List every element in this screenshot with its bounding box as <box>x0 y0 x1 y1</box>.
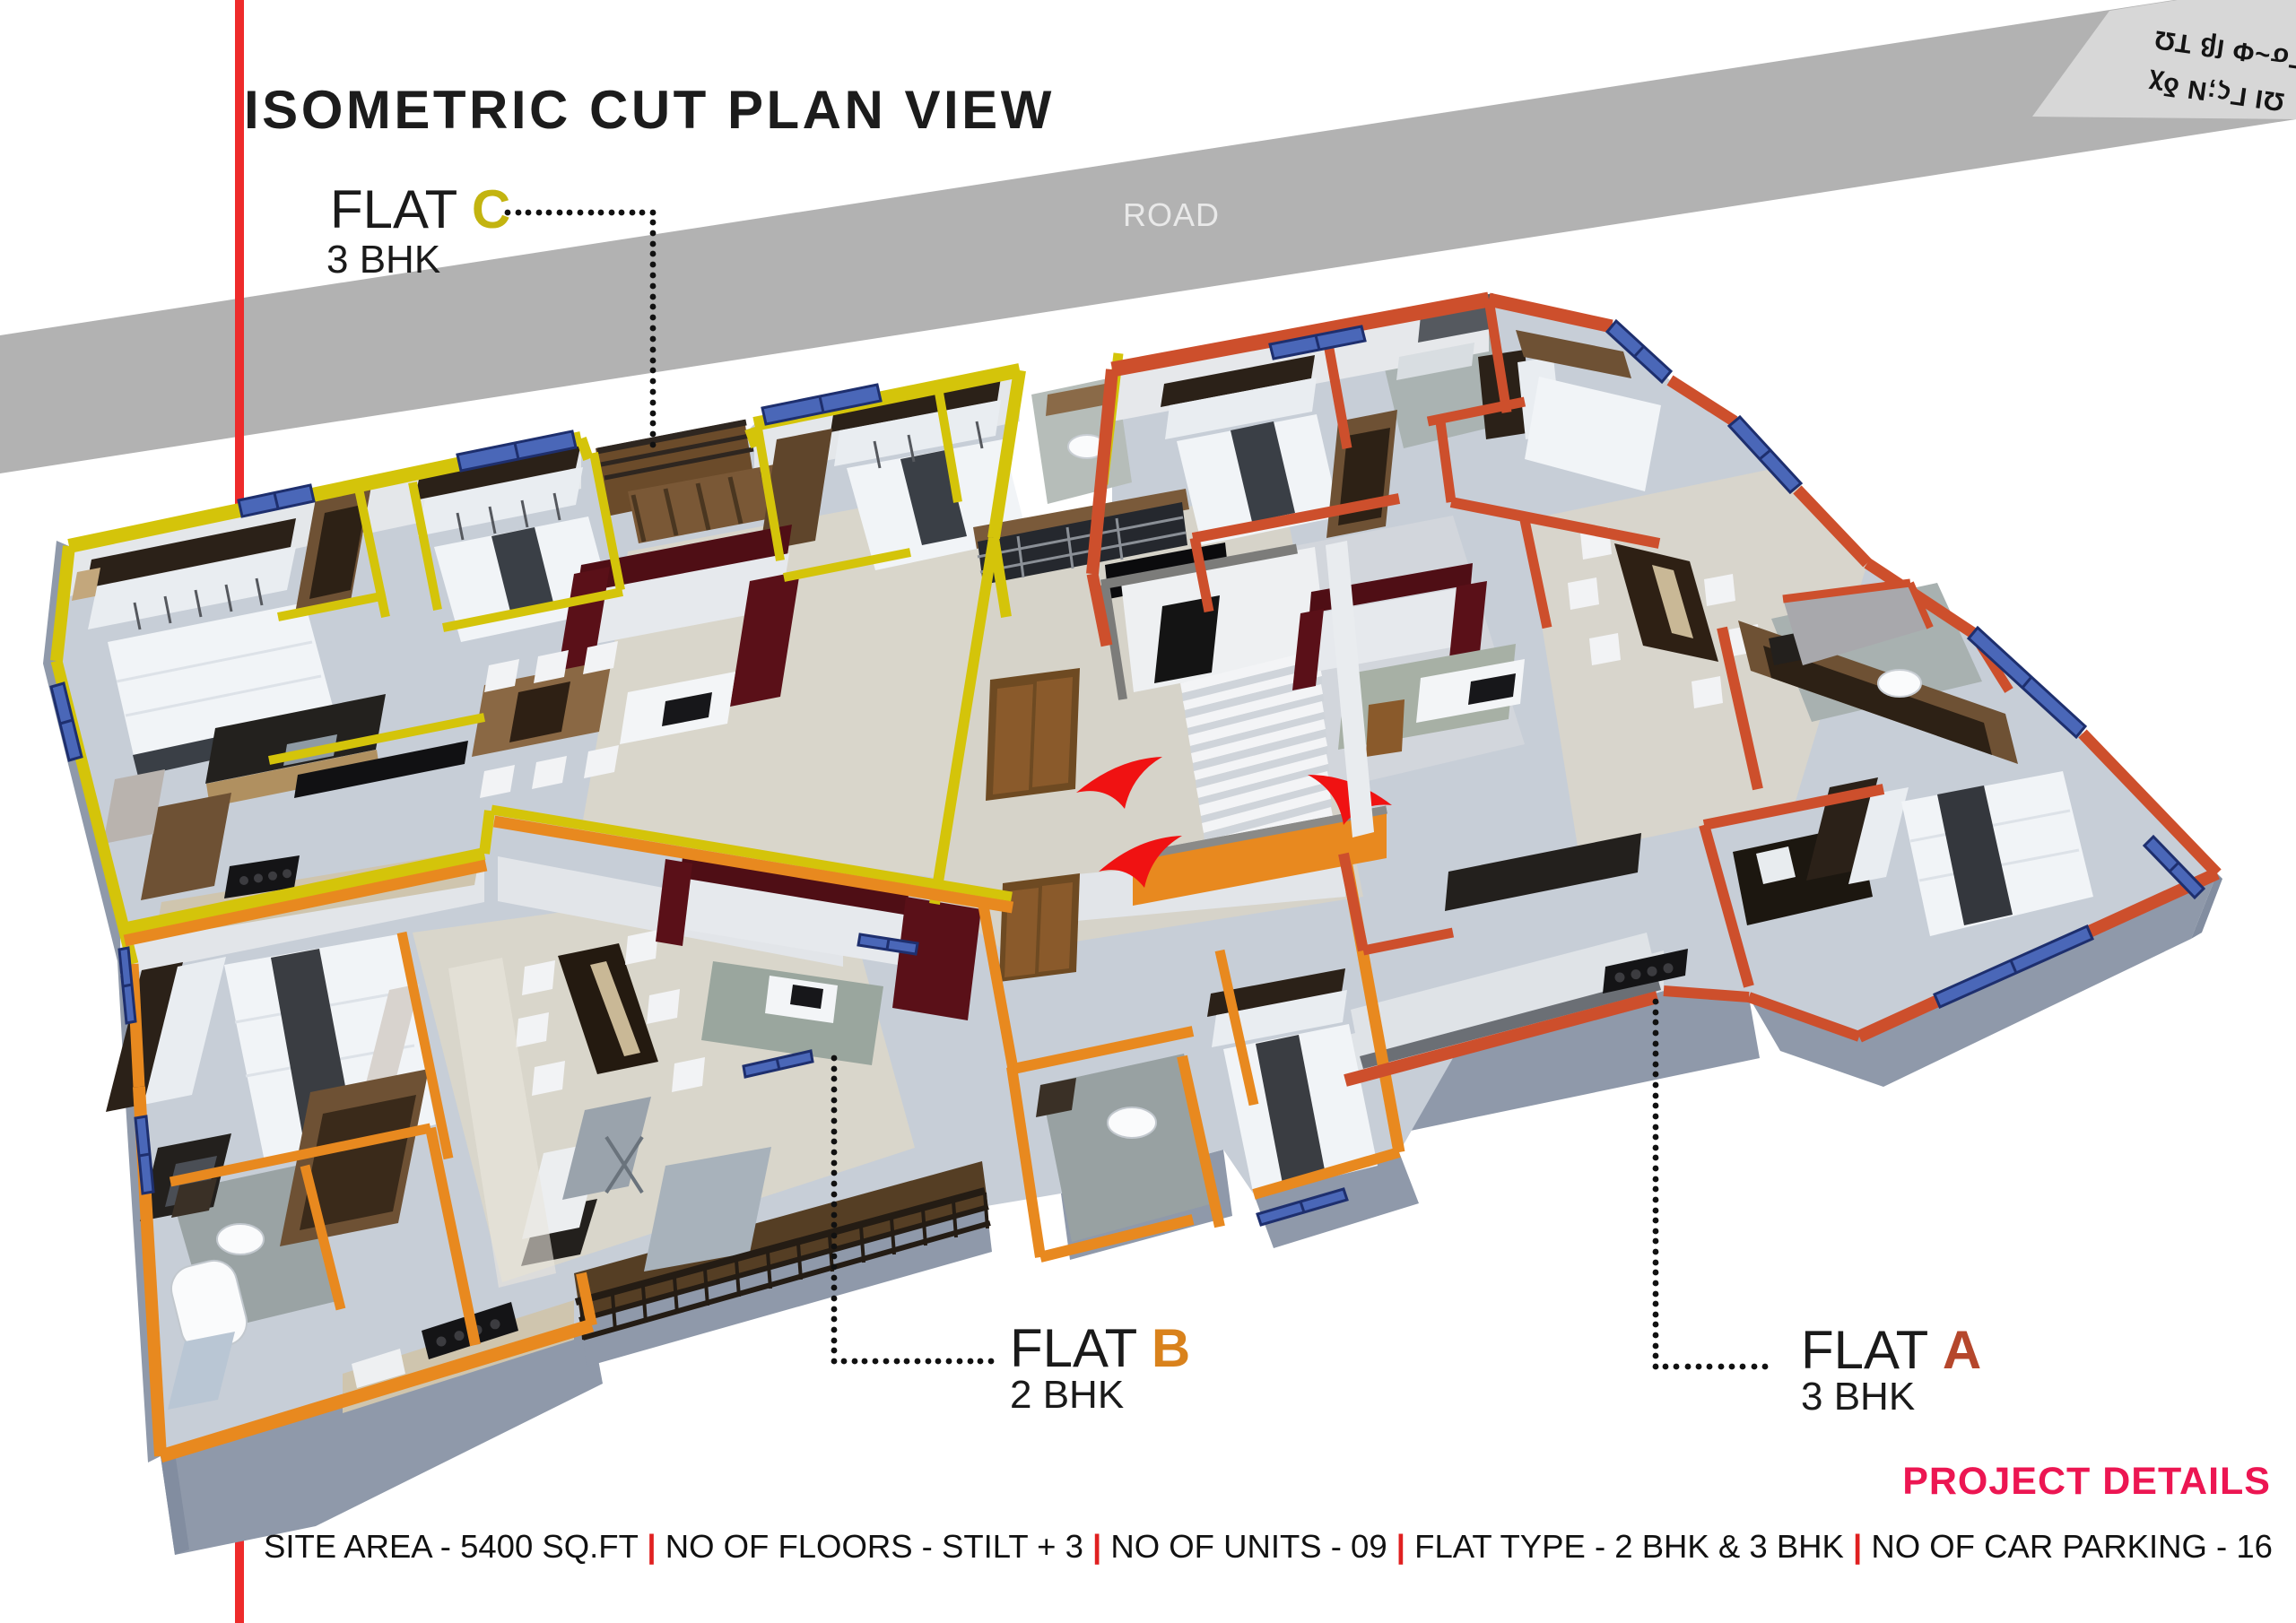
svg-text:FLAT B: FLAT B <box>1010 1318 1190 1378</box>
svg-text:3 BHK: 3 BHK <box>1801 1375 1915 1419</box>
svg-text:3 BHK: 3 BHK <box>326 238 440 282</box>
svg-text:PROJECT DETAILS: PROJECT DETAILS <box>1902 1460 2271 1503</box>
svg-text:SITE AREA - 5400 SQ.FT | NO: SITE AREA - 5400 SQ.FT | NO OF FLOORS - … <box>264 1528 2273 1566</box>
svg-text:FLAT A: FLAT A <box>1801 1320 1981 1380</box>
svg-text:FLAT C: FLAT C <box>330 179 510 239</box>
svg-text:ROAD: ROAD <box>1123 196 1220 233</box>
svg-text:ISOMETRIC CUT PLAN VIEW: ISOMETRIC CUT PLAN VIEW <box>244 80 1055 140</box>
svg-text:2 BHK: 2 BHK <box>1010 1373 1124 1417</box>
